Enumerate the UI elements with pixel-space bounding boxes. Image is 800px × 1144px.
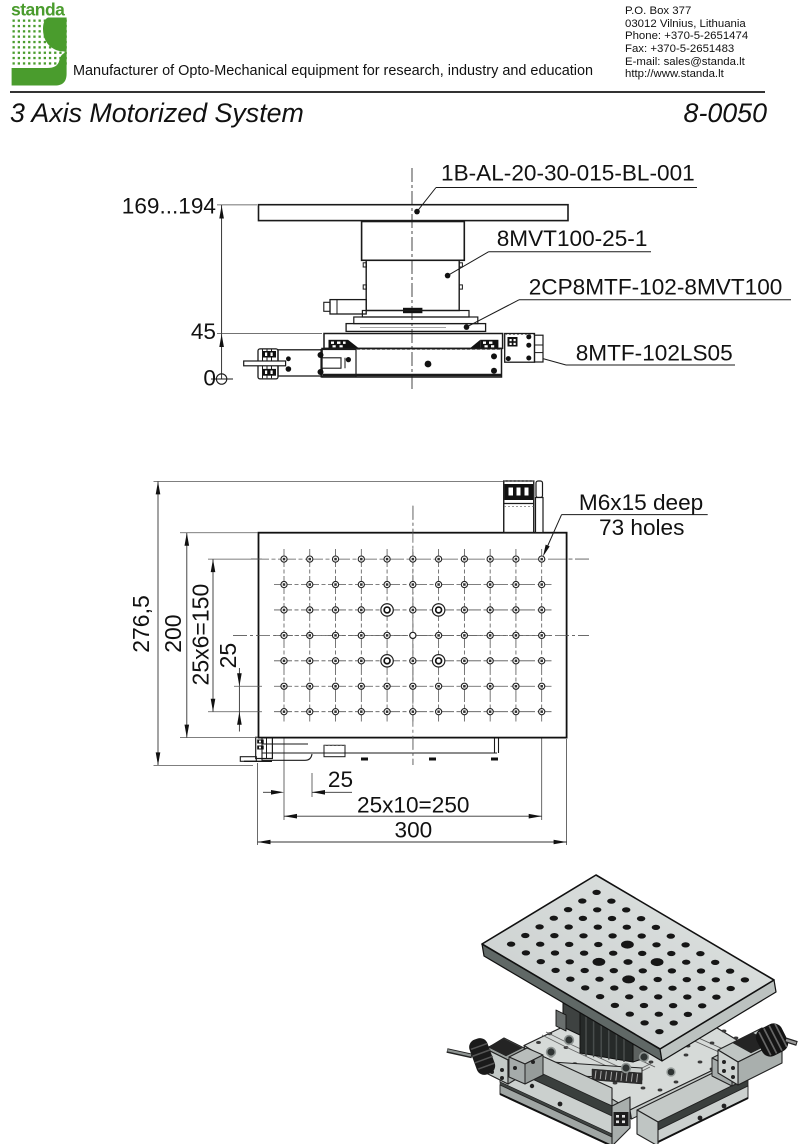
svg-text:169...194: 169...194 bbox=[122, 194, 216, 219]
svg-text:2CP8MTF-102-8MVT100: 2CP8MTF-102-8MVT100 bbox=[529, 275, 783, 300]
svg-text:300: 300 bbox=[395, 818, 433, 843]
svg-text:25x6=150: 25x6=150 bbox=[187, 584, 213, 686]
svg-text:45: 45 bbox=[191, 319, 216, 344]
svg-text:1B-AL-20-30-015-BL-001: 1B-AL-20-30-015-BL-001 bbox=[441, 161, 695, 186]
svg-text:73 holes: 73 holes bbox=[599, 515, 684, 540]
svg-text:8MVT100-25-1: 8MVT100-25-1 bbox=[497, 226, 648, 251]
svg-text:8MTF-102LS05: 8MTF-102LS05 bbox=[576, 341, 733, 366]
svg-text:0: 0 bbox=[203, 366, 216, 391]
svg-text:276,5: 276,5 bbox=[128, 595, 154, 653]
svg-text:25: 25 bbox=[215, 643, 241, 669]
svg-text:25x10=250: 25x10=250 bbox=[357, 793, 469, 818]
svg-text:200: 200 bbox=[160, 614, 186, 652]
svg-text:25: 25 bbox=[328, 767, 353, 792]
svg-text:M6x15 deep: M6x15 deep bbox=[579, 490, 703, 515]
